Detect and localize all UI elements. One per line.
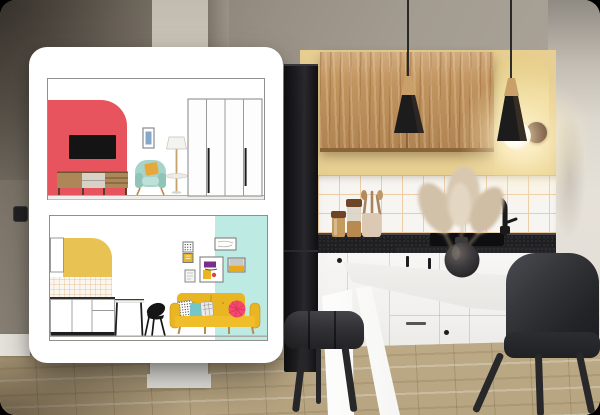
design-board-card [29,47,283,363]
plaid-pillow [201,302,214,317]
light-switch [13,206,28,222]
chair-seat [504,332,600,358]
kitchen-elevation [49,215,268,341]
tall-cabinet [51,238,64,272]
large-art-frame [200,257,223,282]
two-tone-frame [228,258,245,272]
tv-screen [69,135,116,159]
mustard-pillow [144,162,159,176]
living-room-elevation [47,78,265,200]
promo-image [0,0,600,415]
chair-leg [316,348,321,404]
lower-cabinets [51,299,115,336]
pink-pillow [229,301,246,318]
wardrobe [188,99,262,196]
tile-grid [50,277,112,297]
framed-art [143,128,154,148]
pampas-grass [411,165,511,248]
chair-seat [284,311,364,349]
yellow-arch [63,238,112,277]
